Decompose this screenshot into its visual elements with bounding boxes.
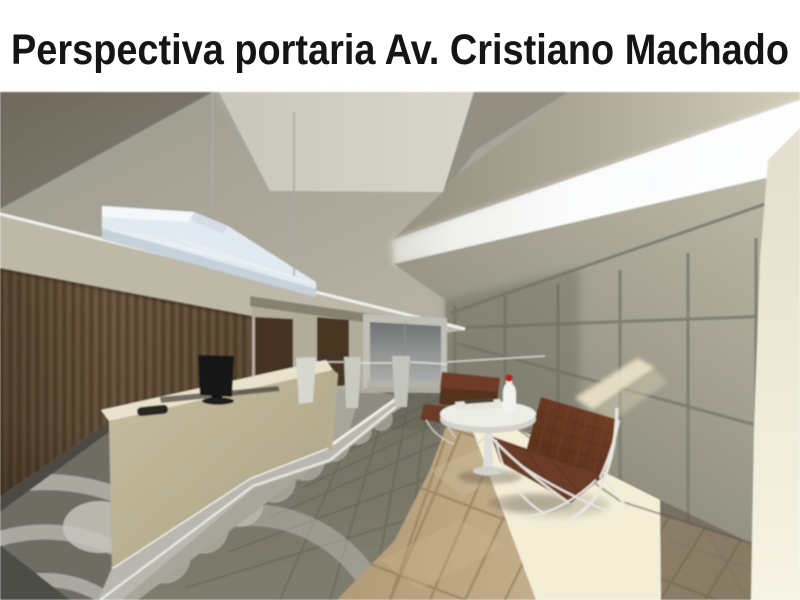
- svg-text:Perspectiva portaria Av. Crist: Perspectiva portaria Av. Cristiano Macha…: [11, 26, 789, 74]
